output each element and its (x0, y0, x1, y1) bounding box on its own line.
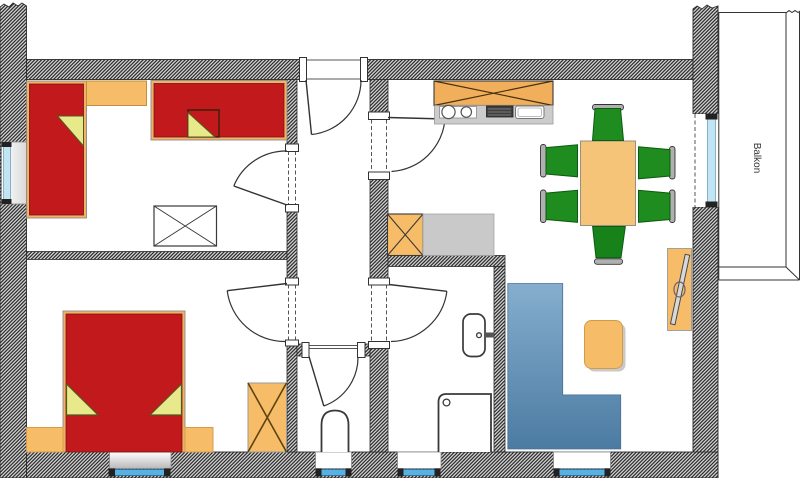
svg-text:Balkon: Balkon (751, 143, 762, 174)
